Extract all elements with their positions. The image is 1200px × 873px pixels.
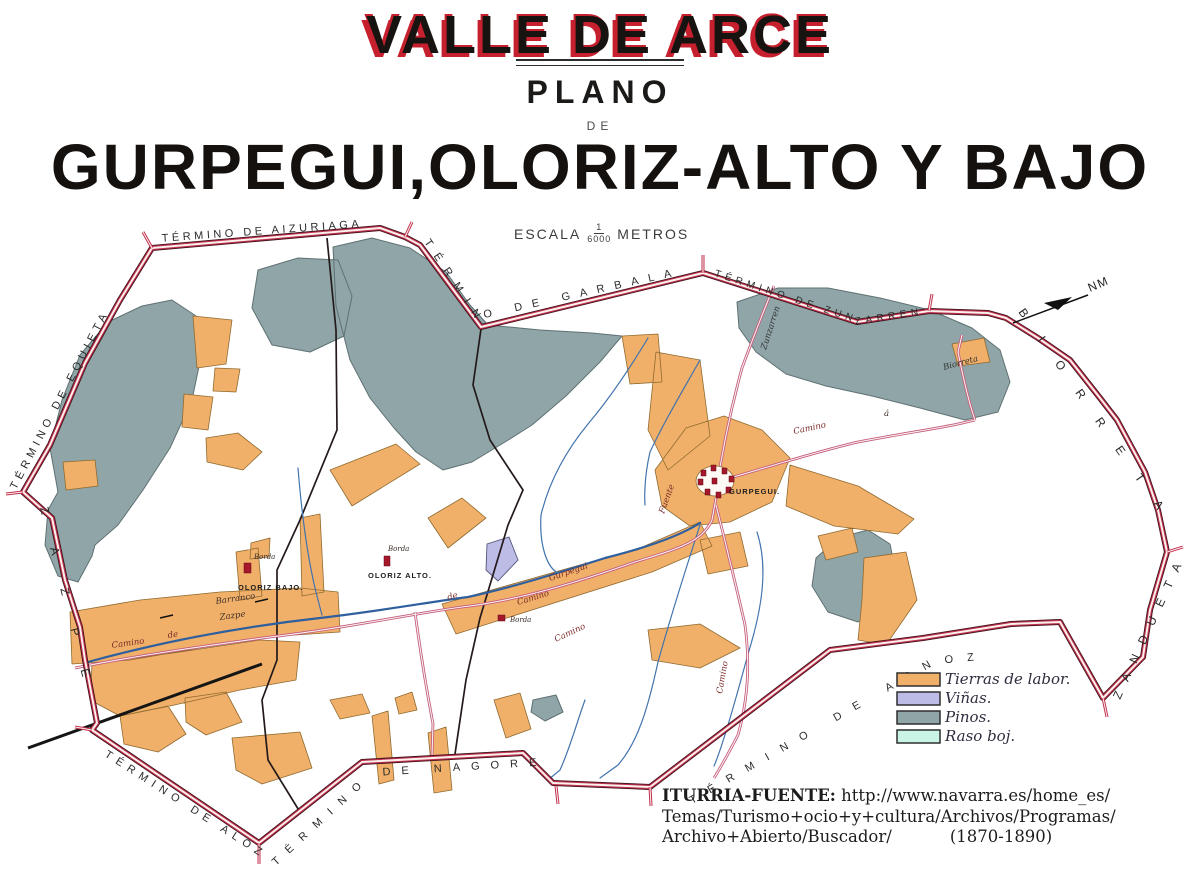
label-oloriz-bajo: OLORIZ BAJO. (238, 583, 303, 592)
scale-metros: METROS (617, 226, 689, 242)
scale-fraction: 1 6000 (587, 223, 611, 244)
legend-item-vinas: Viñas. (896, 691, 1070, 706)
legend-swatch-raso (896, 729, 942, 745)
map-document: GURPEGUI. OLORIZ ALTO. OLORIZ BAJO. Barr… (0, 0, 1200, 873)
annotation-de-west: de (167, 630, 179, 641)
annotation-camino-east: Camino (793, 420, 827, 437)
subtitle-plano: PLANO (0, 74, 1200, 111)
north-label: NM (1086, 273, 1111, 294)
north-arrow-head (1044, 297, 1072, 310)
source-line2: Temas/Turismo+ocio+y+cultura/Archivos/Pr… (662, 807, 1116, 826)
source-line3: Archivo+Abierto/Buscador/ (662, 827, 892, 846)
legend-item-raso: Raso boj. (896, 729, 1070, 744)
map-legend: Tierras de labor. Viñas. Pinos. Raso boj… (896, 672, 1070, 748)
legend-swatch-pinos (896, 710, 942, 726)
source-label: ITURRIA-FUENTE: (662, 786, 836, 805)
border-label-nagore: TÉRMINO DE NAGORE (270, 756, 548, 868)
main-river (88, 523, 700, 662)
legend-swatch-tierras (896, 672, 942, 688)
border-label-biorreta: BIORRETA (1016, 306, 1182, 534)
legend-label-raso: Raso boj. (945, 729, 1015, 744)
source-line1: ITURRIA-FUENTE: http://www.navarra.es/ho… (662, 786, 1110, 805)
source-years: (1870-1890) (950, 827, 1052, 846)
legend-item-tierras: Tierras de labor. (896, 672, 1070, 687)
annotation-a: á (884, 408, 889, 419)
scale-escala: ESCALA (514, 226, 581, 242)
legend-item-pinos: Pinos. (896, 710, 1070, 725)
scale-numerator: 1 (594, 223, 604, 234)
legend-label-vinas: Viñas. (945, 691, 991, 706)
page-title: VALLE DE ARCE (0, 4, 1200, 66)
label-gurpegui: GURPEGUI. (729, 487, 780, 496)
legend-swatch-vinas (896, 691, 942, 707)
source-url-start: http://www.navarra.es/home_es/ (836, 786, 1110, 805)
legend-label-tierras: Tierras de labor. (945, 672, 1070, 687)
scale-bar: ESCALA 1 6000 METROS (514, 223, 689, 244)
annotation-borda-alto: Borda (387, 545, 409, 553)
subtitle-places: GURPEGUI,OLORIZ-ALTO Y BAJO (0, 130, 1200, 204)
annotation-borda-bajo: Borda (253, 553, 275, 561)
border-label-zandueta: ZANDUETA (1110, 550, 1189, 701)
title-divider (516, 59, 684, 66)
annotation-camino-south: Camino (715, 660, 731, 694)
source-note: ITURRIA-FUENTE: http://www.navarra.es/ho… (662, 786, 1132, 848)
scale-denominator: 6000 (587, 234, 611, 244)
annotation-borda-river: Borda (509, 616, 531, 624)
annotation-camino-se: Camino (553, 622, 587, 645)
legend-label-pinos: Pinos. (945, 710, 991, 725)
label-oloriz-alto: OLORIZ ALTO. (368, 571, 432, 580)
